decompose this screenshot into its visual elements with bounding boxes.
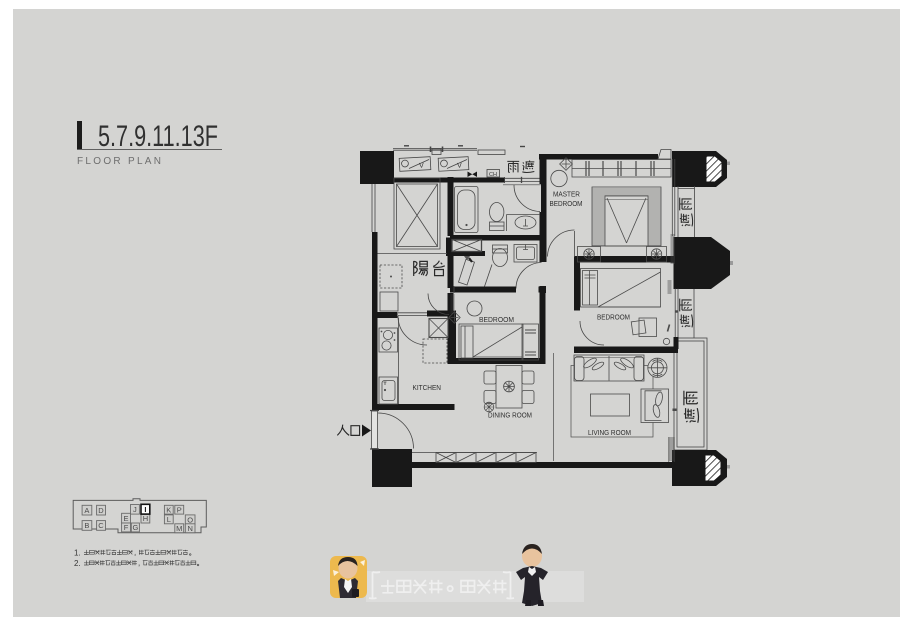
svg-text:M: M <box>176 524 182 533</box>
svg-text:L: L <box>167 515 171 524</box>
svg-text:B: B <box>84 521 89 530</box>
svg-text:D: D <box>98 506 104 515</box>
svg-text:5.7.9.11.13F: 5.7.9.11.13F <box>98 120 218 153</box>
svg-text:BEDROOM: BEDROOM <box>479 315 514 324</box>
svg-text:G: G <box>132 523 138 532</box>
svg-text:J: J <box>133 505 137 514</box>
svg-text:N: N <box>187 524 192 533</box>
svg-text:KITCHEN: KITCHEN <box>413 383 442 392</box>
svg-text:BEDROOM: BEDROOM <box>550 199 583 208</box>
svg-text:H: H <box>143 514 148 523</box>
svg-text:LIVING ROOM: LIVING ROOM <box>588 428 631 437</box>
svg-text:MASTER: MASTER <box>553 190 580 199</box>
svg-text:2.: 2. <box>74 559 81 568</box>
svg-text:FLOOR PLAN: FLOOR PLAN <box>77 156 164 167</box>
svg-text:I: I <box>144 505 146 514</box>
svg-text:1.: 1. <box>74 549 81 558</box>
svg-text:CH: CH <box>489 172 497 178</box>
svg-text:K: K <box>166 505 171 514</box>
svg-text:C: C <box>98 521 104 530</box>
svg-text:V: V <box>419 163 424 170</box>
svg-text:P: P <box>177 505 182 514</box>
svg-text:E: E <box>123 514 128 523</box>
svg-text:V: V <box>457 163 462 170</box>
svg-text:BEDROOM: BEDROOM <box>597 313 630 322</box>
svg-text:DINING ROOM: DINING ROOM <box>488 411 532 420</box>
svg-text:F: F <box>124 523 129 532</box>
svg-text:A: A <box>84 506 89 515</box>
